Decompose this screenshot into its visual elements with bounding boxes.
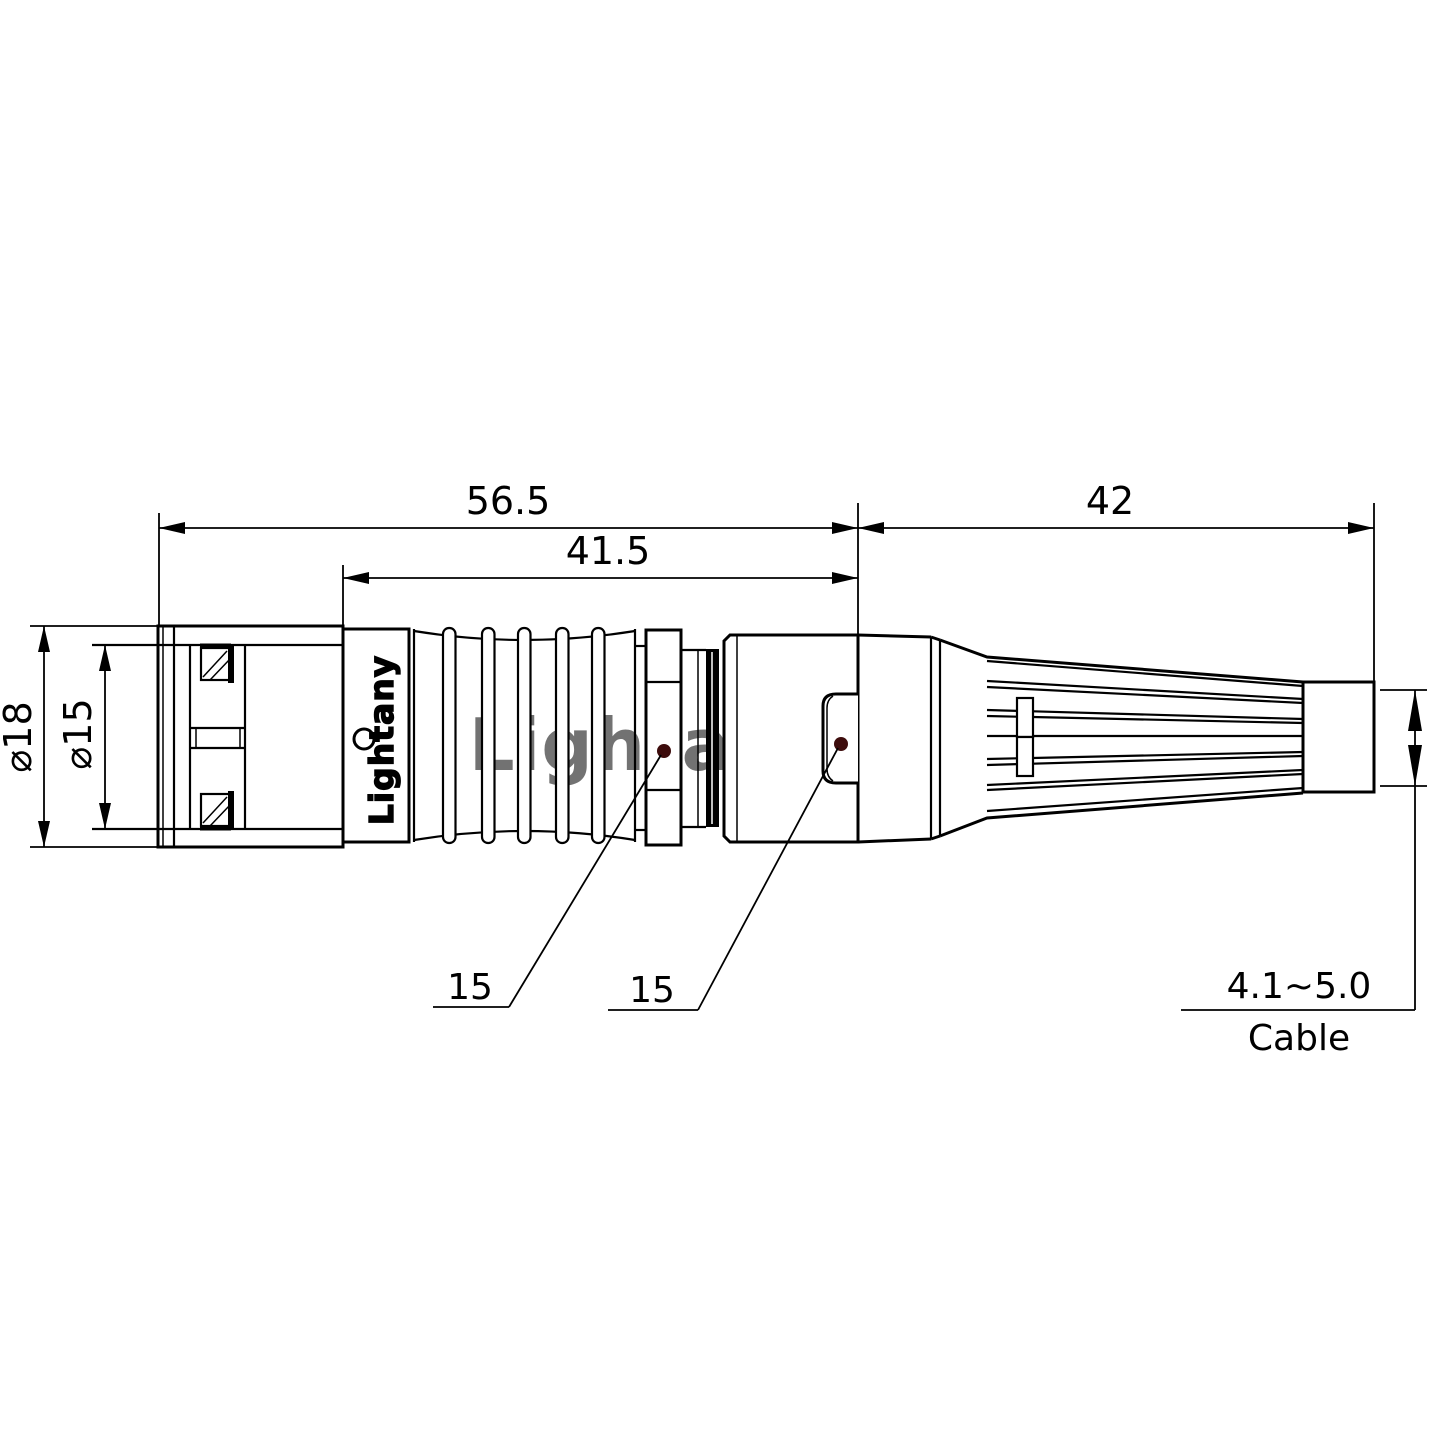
arrow-left-icon (159, 522, 185, 534)
dimension-boot-length: 42 (858, 479, 1374, 682)
arrow-down-icon (99, 803, 111, 829)
dim-inner-diameter-value: ⌀15 (56, 698, 100, 769)
arrow-left-icon (858, 522, 884, 534)
arrow-down-icon (38, 821, 50, 847)
body-block: Lightany (343, 629, 414, 842)
rear-shell (724, 635, 940, 842)
cable-range-value: 4.1~5.0 (1227, 966, 1372, 1007)
cable-label: Cable (1248, 1018, 1350, 1059)
arrow-up-icon (38, 626, 50, 652)
dim-outer-diameter-value: ⌀18 (0, 701, 40, 772)
arrow-up-icon (99, 645, 111, 671)
dim-boot-length-value: 42 (1086, 479, 1134, 523)
drawing-svg: Lightany (0, 0, 1440, 1440)
callout-collar-value: 15 (447, 967, 493, 1008)
strain-relief-boot (940, 640, 1374, 836)
boot-fins (987, 661, 1303, 811)
dimension-body-length: 41.5 (343, 529, 858, 629)
arrow-left-icon (343, 572, 369, 584)
dimension-total-length: 56.5 (159, 479, 858, 634)
callout-dot (657, 744, 671, 758)
arrow-right-icon (832, 572, 858, 584)
arrow-up-icon (1408, 690, 1422, 731)
dim-total-length-value: 56.5 (466, 479, 551, 523)
arrow-right-icon (832, 522, 858, 534)
dim-body-length-value: 41.5 (566, 529, 651, 573)
latch-window-top (200, 645, 234, 683)
arrow-down-icon (1408, 745, 1422, 786)
dimension-inner-diameter: ⌀15 (56, 645, 158, 829)
front-tube (92, 626, 343, 847)
callout-shell-value: 15 (629, 970, 675, 1011)
arrow-right-icon (1348, 522, 1374, 534)
latch-window-bottom (200, 791, 234, 829)
connector-technical-drawing: Lightany (0, 0, 1440, 1440)
ribbed-grip (414, 628, 635, 843)
cable-exit-cylinder (1303, 682, 1374, 792)
callout-dot (834, 737, 848, 751)
brand-label: Lightany (362, 655, 401, 826)
